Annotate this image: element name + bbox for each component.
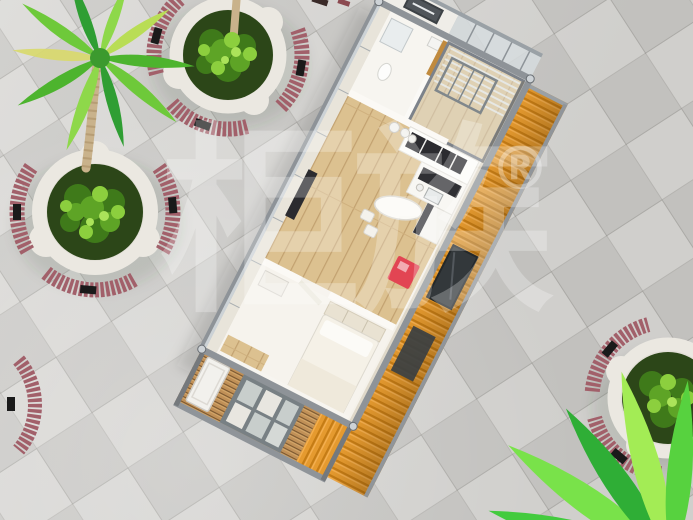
palm-crown	[90, 48, 110, 68]
bench-armrest	[7, 397, 15, 411]
render-stage: 柜族 ®	[0, 0, 693, 520]
bench-armrest	[13, 204, 21, 220]
scene-render	[0, 0, 693, 520]
bench-fragment-left-edge	[7, 360, 35, 450]
planter-left	[13, 141, 182, 294]
bench-armrest	[168, 197, 177, 214]
bench-armrest	[80, 285, 97, 294]
bench-arc	[19, 360, 35, 450]
bench-fragment-top-edge	[311, 0, 350, 7]
